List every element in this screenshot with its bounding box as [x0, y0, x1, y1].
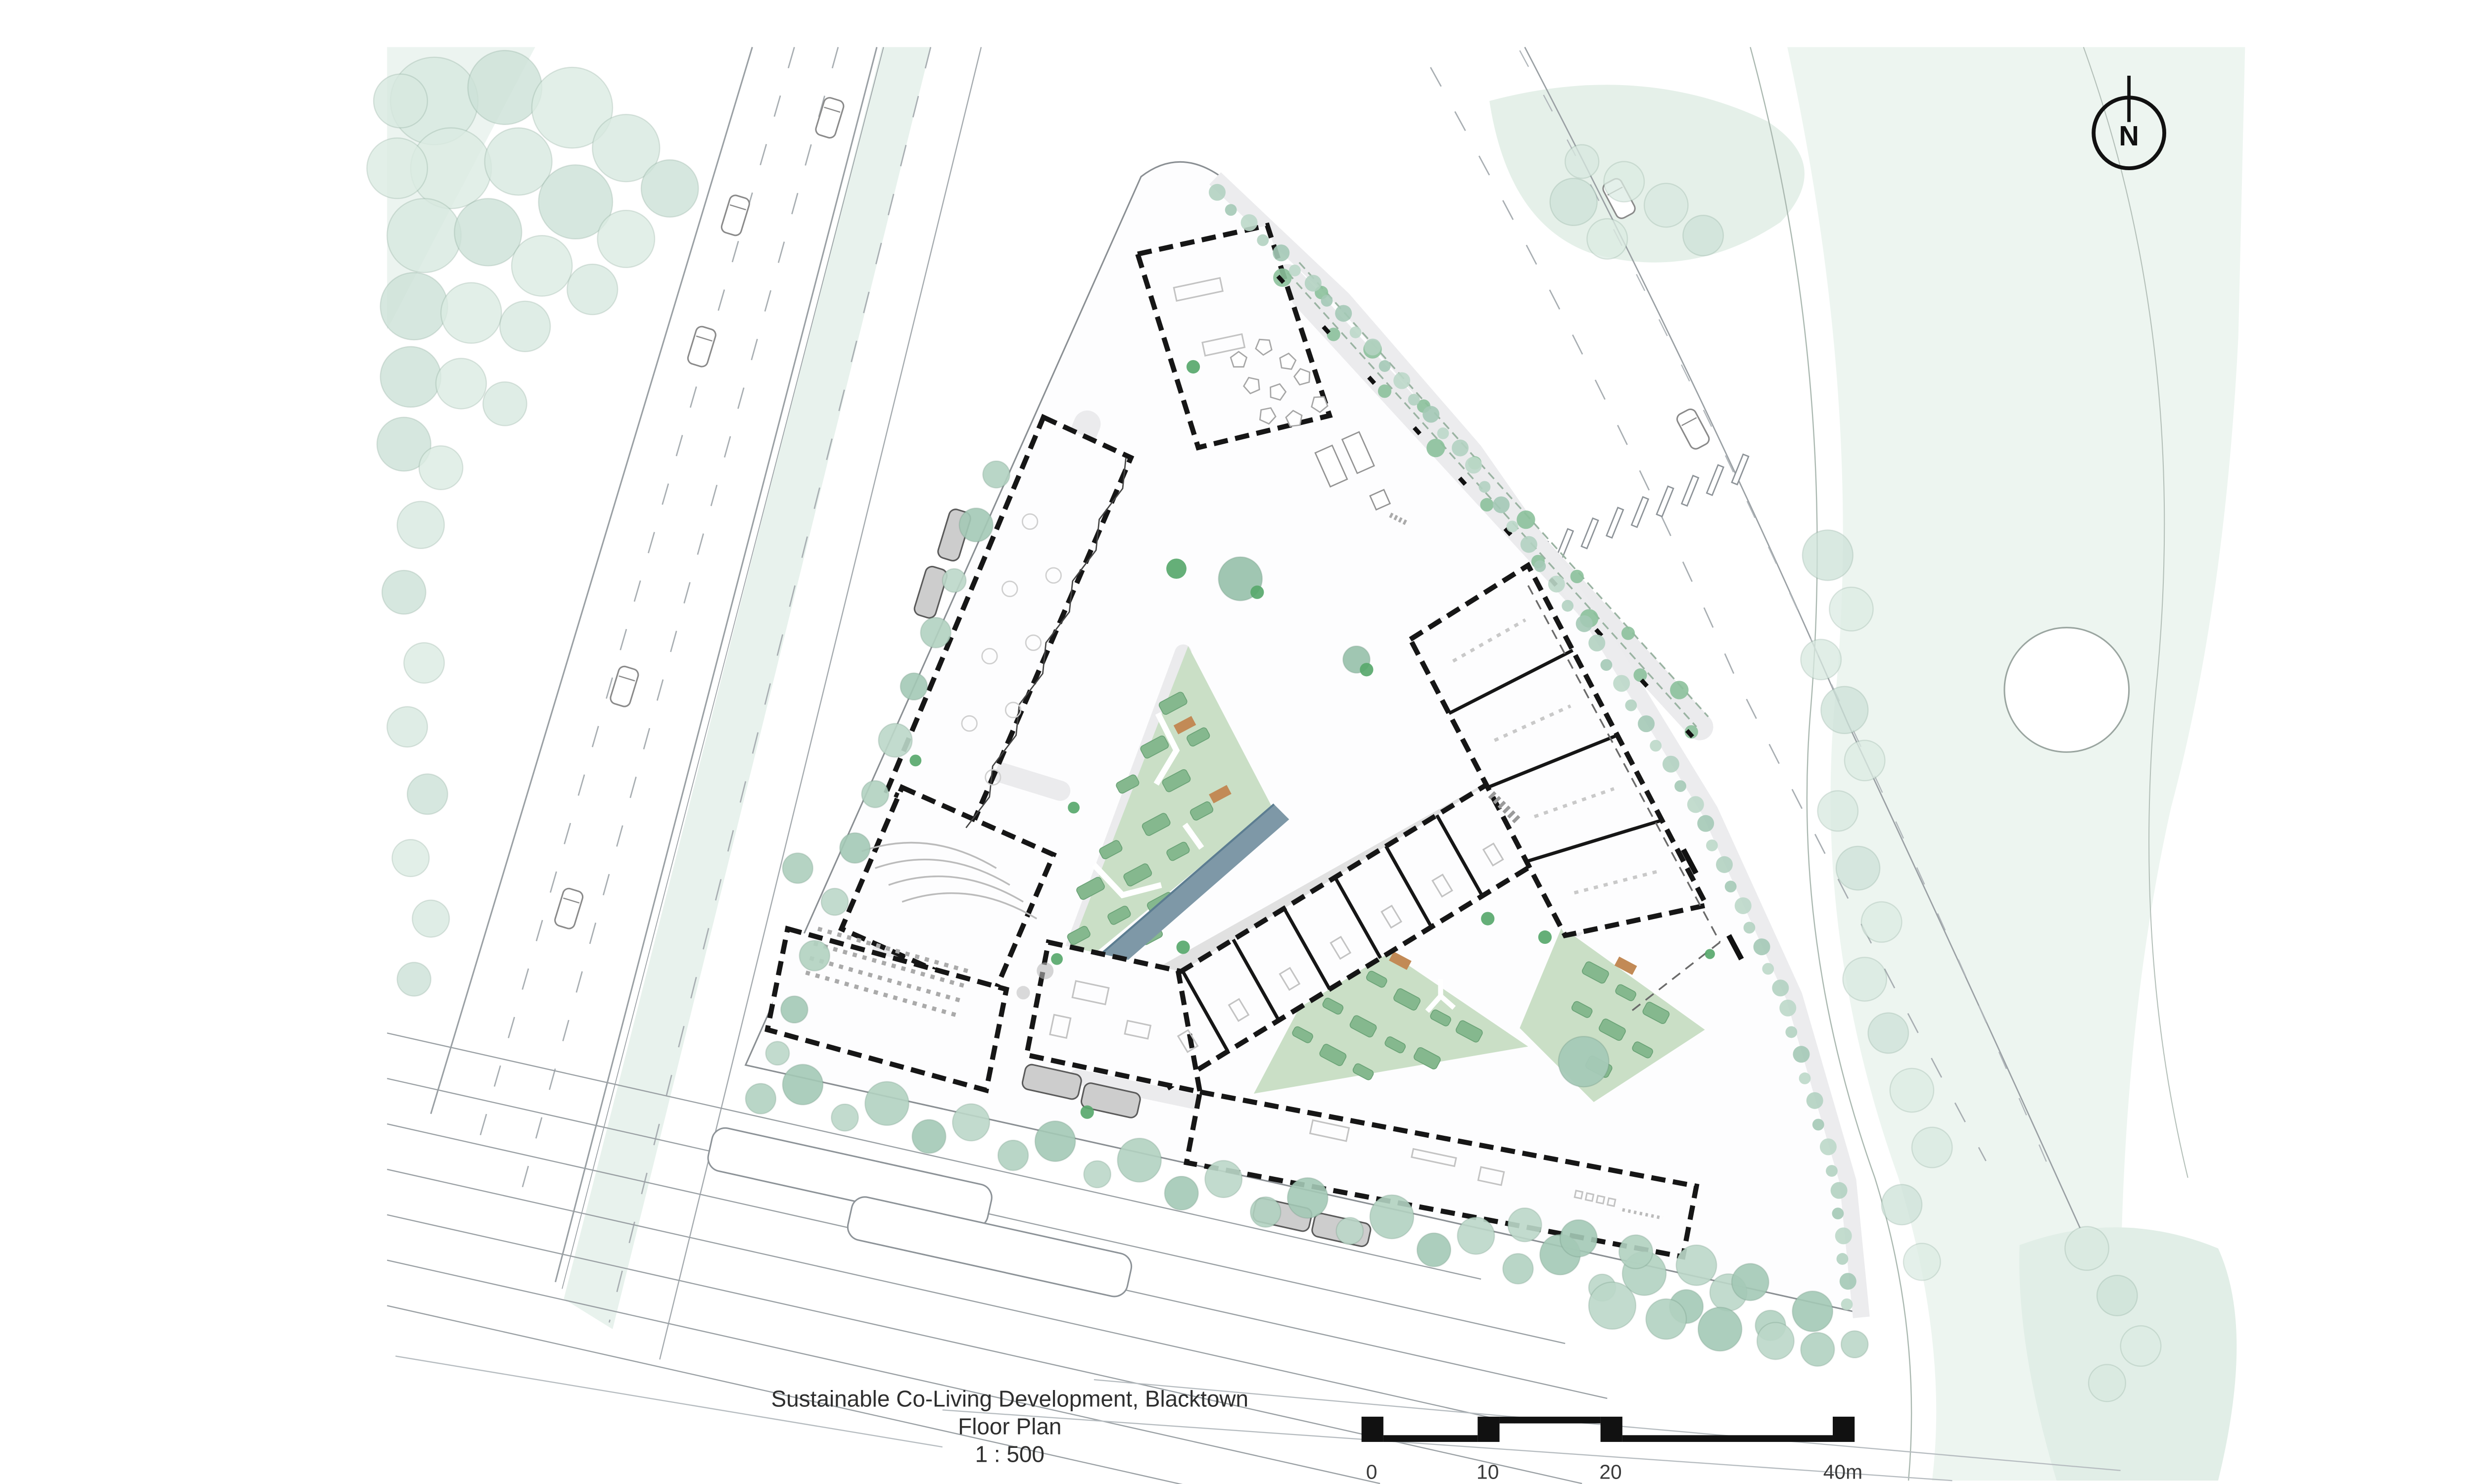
hedge-shrub	[1638, 715, 1655, 732]
hedge-shrub	[1754, 938, 1770, 955]
tree	[1458, 1217, 1495, 1254]
tree	[2089, 1364, 2126, 1401]
accent-shrub	[1068, 802, 1080, 814]
hedge-shrub	[1625, 699, 1637, 711]
hedge-shrub	[1321, 295, 1333, 307]
hedge-shrub	[1832, 1207, 1844, 1219]
hedge-shrub	[1706, 839, 1718, 851]
parking-stripe	[1631, 497, 1648, 527]
tree	[1817, 791, 1858, 832]
planting-clump	[1273, 269, 1291, 287]
planting-clump	[1633, 668, 1647, 682]
tree	[441, 282, 501, 343]
accent-shrub	[1166, 558, 1187, 579]
scale-bar-block	[1833, 1417, 1855, 1442]
tree	[861, 781, 888, 807]
tree	[1841, 1331, 1868, 1357]
hedge-shrub	[1841, 1298, 1853, 1310]
tree	[1084, 1161, 1110, 1188]
tree	[901, 673, 927, 700]
tree	[912, 1119, 946, 1153]
accent-shrub	[909, 754, 921, 766]
tree	[374, 74, 428, 128]
hedge-shrub	[1452, 440, 1469, 457]
hedge-shrub	[1521, 536, 1537, 553]
tree	[783, 1065, 823, 1105]
tree	[1644, 184, 1688, 227]
tree	[387, 707, 428, 747]
tree	[1676, 1245, 1717, 1286]
scale-bar-block	[1601, 1417, 1622, 1442]
tree	[1732, 1263, 1769, 1300]
floor-plan-drawing: N Sustainable Co-Living Development, Bla…	[0, 0, 2474, 1484]
tree	[1503, 1253, 1533, 1284]
tree	[407, 774, 448, 815]
tree	[1868, 1013, 1908, 1054]
scale-bar-segment	[1622, 1435, 1833, 1442]
architectural-floor-plan-sheet: N Sustainable Co-Living Development, Bla…	[0, 0, 2474, 1484]
accent-shrub	[1705, 949, 1715, 959]
accent-shrub	[1051, 953, 1063, 965]
tree	[1801, 639, 1841, 680]
parking-stripe	[1732, 454, 1749, 484]
hedge-shrub	[1364, 338, 1381, 355]
tree	[512, 235, 572, 296]
tree	[1205, 1160, 1242, 1198]
hedge-shrub	[1257, 234, 1269, 246]
tree	[1370, 1195, 1414, 1239]
hedge-shrub	[1209, 184, 1226, 201]
hedge-shrub	[1562, 600, 1573, 612]
scale-bar-segment	[1500, 1417, 1601, 1424]
tree	[1890, 1068, 1934, 1112]
hedge-shrub	[1601, 659, 1613, 671]
hedge-shrub	[1335, 305, 1352, 322]
tree	[943, 569, 966, 593]
tree	[1604, 162, 1644, 202]
tree	[404, 643, 444, 683]
scale-bar-block	[1362, 1417, 1383, 1442]
tree	[1619, 1235, 1653, 1269]
hedge-shrub	[1697, 815, 1714, 832]
tree	[1757, 1322, 1794, 1359]
tree	[641, 160, 699, 217]
scale-label-0: 0	[1366, 1461, 1378, 1484]
hedge-shrub	[1831, 1182, 1848, 1199]
tree	[2097, 1275, 2138, 1316]
tree	[1250, 1197, 1281, 1227]
hedge-shrub	[1837, 1253, 1849, 1265]
hedge-shrub	[1807, 1092, 1823, 1109]
accent-shrub	[1360, 663, 1373, 676]
hedge-shrub	[1305, 275, 1322, 291]
car	[609, 665, 640, 708]
tree	[1821, 687, 1868, 734]
tree	[952, 1104, 990, 1141]
accent-shrub	[1081, 1106, 1094, 1119]
scale-bar: 0 10 20 40m	[1362, 1417, 1862, 1484]
tree	[1792, 1291, 1833, 1332]
tree	[921, 617, 951, 648]
hedge-shrub	[1408, 394, 1420, 406]
tree	[1801, 1333, 1834, 1366]
tree	[781, 996, 808, 1023]
scale-label-40: 40m	[1823, 1461, 1862, 1484]
accent-shrub	[1250, 586, 1264, 599]
pond-outline	[2004, 628, 2129, 752]
hedge-shrub	[1716, 856, 1733, 873]
tree	[821, 888, 848, 915]
hedge-shrub	[1835, 1227, 1852, 1244]
tree	[1861, 902, 1902, 942]
accent-shrub	[1177, 940, 1190, 954]
tree	[1836, 846, 1880, 890]
planting-clump	[1480, 498, 1493, 511]
tree	[959, 508, 993, 542]
hedge-shrub	[1465, 457, 1482, 473]
tree	[1550, 179, 1597, 226]
tree	[1035, 1121, 1076, 1161]
planting-clump	[1570, 570, 1584, 583]
tree	[831, 1104, 858, 1131]
tree	[1803, 530, 1853, 580]
tree	[983, 461, 1009, 488]
hedge-shrub	[1379, 360, 1391, 372]
tree	[485, 128, 552, 195]
hedge-shrub	[1735, 897, 1752, 914]
tree	[1417, 1233, 1451, 1267]
tree	[567, 264, 618, 315]
tree	[1646, 1299, 1686, 1340]
drawing-scale: 1 : 500	[975, 1441, 1045, 1467]
scale-label-20: 20	[1599, 1461, 1621, 1484]
tree	[468, 50, 542, 125]
hedge-shrub	[1548, 576, 1565, 593]
planting-clump	[1378, 384, 1391, 398]
road-edge	[943, 1410, 1952, 1481]
hedge-shrub	[1478, 481, 1490, 493]
tree	[1882, 1185, 1922, 1225]
tree	[1117, 1138, 1161, 1182]
scale-bar-block	[1477, 1417, 1499, 1442]
planting-clump	[1427, 439, 1445, 457]
car	[554, 887, 584, 930]
hedge-shrub	[1772, 979, 1789, 996]
planting-clump	[1621, 627, 1635, 640]
tree	[1587, 219, 1627, 259]
park-lawn	[1489, 85, 1805, 262]
parking-stripe	[1707, 465, 1723, 495]
plan-tree	[1016, 986, 1030, 999]
tree	[1843, 957, 1886, 1001]
tree	[381, 347, 441, 407]
tree	[483, 382, 526, 425]
tree	[1589, 1282, 1636, 1329]
tree	[1559, 1036, 1609, 1087]
tree	[800, 940, 830, 971]
tree	[1287, 1178, 1328, 1218]
tree	[412, 900, 449, 937]
hedge-shrub	[1534, 560, 1546, 572]
rail-track	[387, 1260, 1380, 1484]
north-label: N	[2119, 120, 2139, 151]
tree	[1560, 1220, 1597, 1257]
tree	[1698, 1307, 1742, 1351]
tree	[878, 724, 912, 757]
hedge-shrub	[1812, 1119, 1824, 1131]
tree	[392, 839, 429, 877]
planting-clump	[1670, 681, 1688, 699]
hedge-shrub	[1744, 922, 1756, 933]
tree	[436, 358, 486, 409]
hedge-shrub	[1785, 1026, 1797, 1038]
planting-clump	[1517, 510, 1535, 529]
car	[686, 325, 717, 368]
tree	[2065, 1227, 2108, 1270]
tree	[1565, 145, 1599, 179]
tree	[865, 1082, 908, 1125]
hedge-shrub	[1725, 881, 1737, 892]
tree	[1829, 587, 1873, 631]
tree	[783, 853, 813, 883]
tree	[1165, 1176, 1198, 1210]
hedge-shrub	[1793, 1046, 1809, 1063]
accent-shrub	[1538, 930, 1552, 944]
tree	[500, 301, 550, 352]
hedge-shrub	[1273, 244, 1289, 261]
hedge-shrub	[1650, 740, 1662, 752]
hedge-shrub	[1423, 406, 1439, 423]
hedge-shrub	[1350, 326, 1362, 338]
tree	[454, 198, 522, 266]
hedge-shrub	[1225, 204, 1237, 216]
parking-stripe	[1682, 475, 1699, 506]
accent-shrub	[1481, 912, 1494, 926]
hedge-shrub	[1613, 675, 1630, 692]
tree	[746, 1083, 776, 1113]
tree	[1845, 741, 1885, 781]
parking-stripe	[1581, 518, 1598, 549]
tree	[387, 198, 461, 273]
plan-tree	[1037, 963, 1053, 979]
tree	[998, 1140, 1028, 1170]
tree	[381, 273, 448, 340]
tree	[1903, 1244, 1941, 1281]
tree	[597, 210, 655, 268]
car	[814, 96, 845, 139]
hedge-shrub	[1779, 1000, 1796, 1017]
tree	[840, 833, 870, 863]
drawing-subtitle: Floor Plan	[958, 1414, 1061, 1439]
tree	[1683, 215, 1723, 256]
hedge-shrub	[1674, 780, 1686, 792]
parking-stripe	[1657, 486, 1673, 516]
hedge-shrub	[1588, 635, 1605, 651]
car	[720, 194, 751, 237]
tree	[766, 1041, 790, 1065]
tree	[397, 502, 444, 549]
hedge-shrub	[1437, 427, 1449, 439]
parking-stripe	[1607, 508, 1623, 538]
hedge-shrub	[1576, 615, 1593, 632]
bus	[913, 565, 949, 620]
tree	[2121, 1326, 2161, 1366]
scale-label-10: 10	[1476, 1461, 1499, 1484]
tree	[1336, 1217, 1363, 1244]
hedge-shrub	[1241, 214, 1258, 231]
tree	[397, 963, 431, 996]
hedge-shrub	[1762, 963, 1774, 975]
tree	[1912, 1127, 1952, 1168]
hedge-shrub	[1289, 265, 1301, 277]
hedge-shrub	[1687, 796, 1704, 813]
hedge-shrub	[1506, 521, 1518, 533]
hedge-shrub	[1826, 1165, 1838, 1177]
tree	[1508, 1208, 1542, 1242]
tree	[382, 570, 426, 614]
tree	[367, 138, 427, 198]
scale-bar-segment	[1383, 1435, 1477, 1442]
accent-shrub	[1187, 360, 1200, 373]
drawing-title: Sustainable Co-Living Development, Black…	[771, 1386, 1249, 1411]
hedge-shrub	[1820, 1138, 1837, 1155]
hedge-shrub	[1840, 1273, 1856, 1290]
hedge-shrub	[1393, 372, 1410, 389]
tree	[419, 446, 463, 489]
hedge-shrub	[1493, 496, 1510, 513]
hedge-shrub	[1799, 1072, 1811, 1084]
hedge-shrub	[1663, 756, 1679, 773]
